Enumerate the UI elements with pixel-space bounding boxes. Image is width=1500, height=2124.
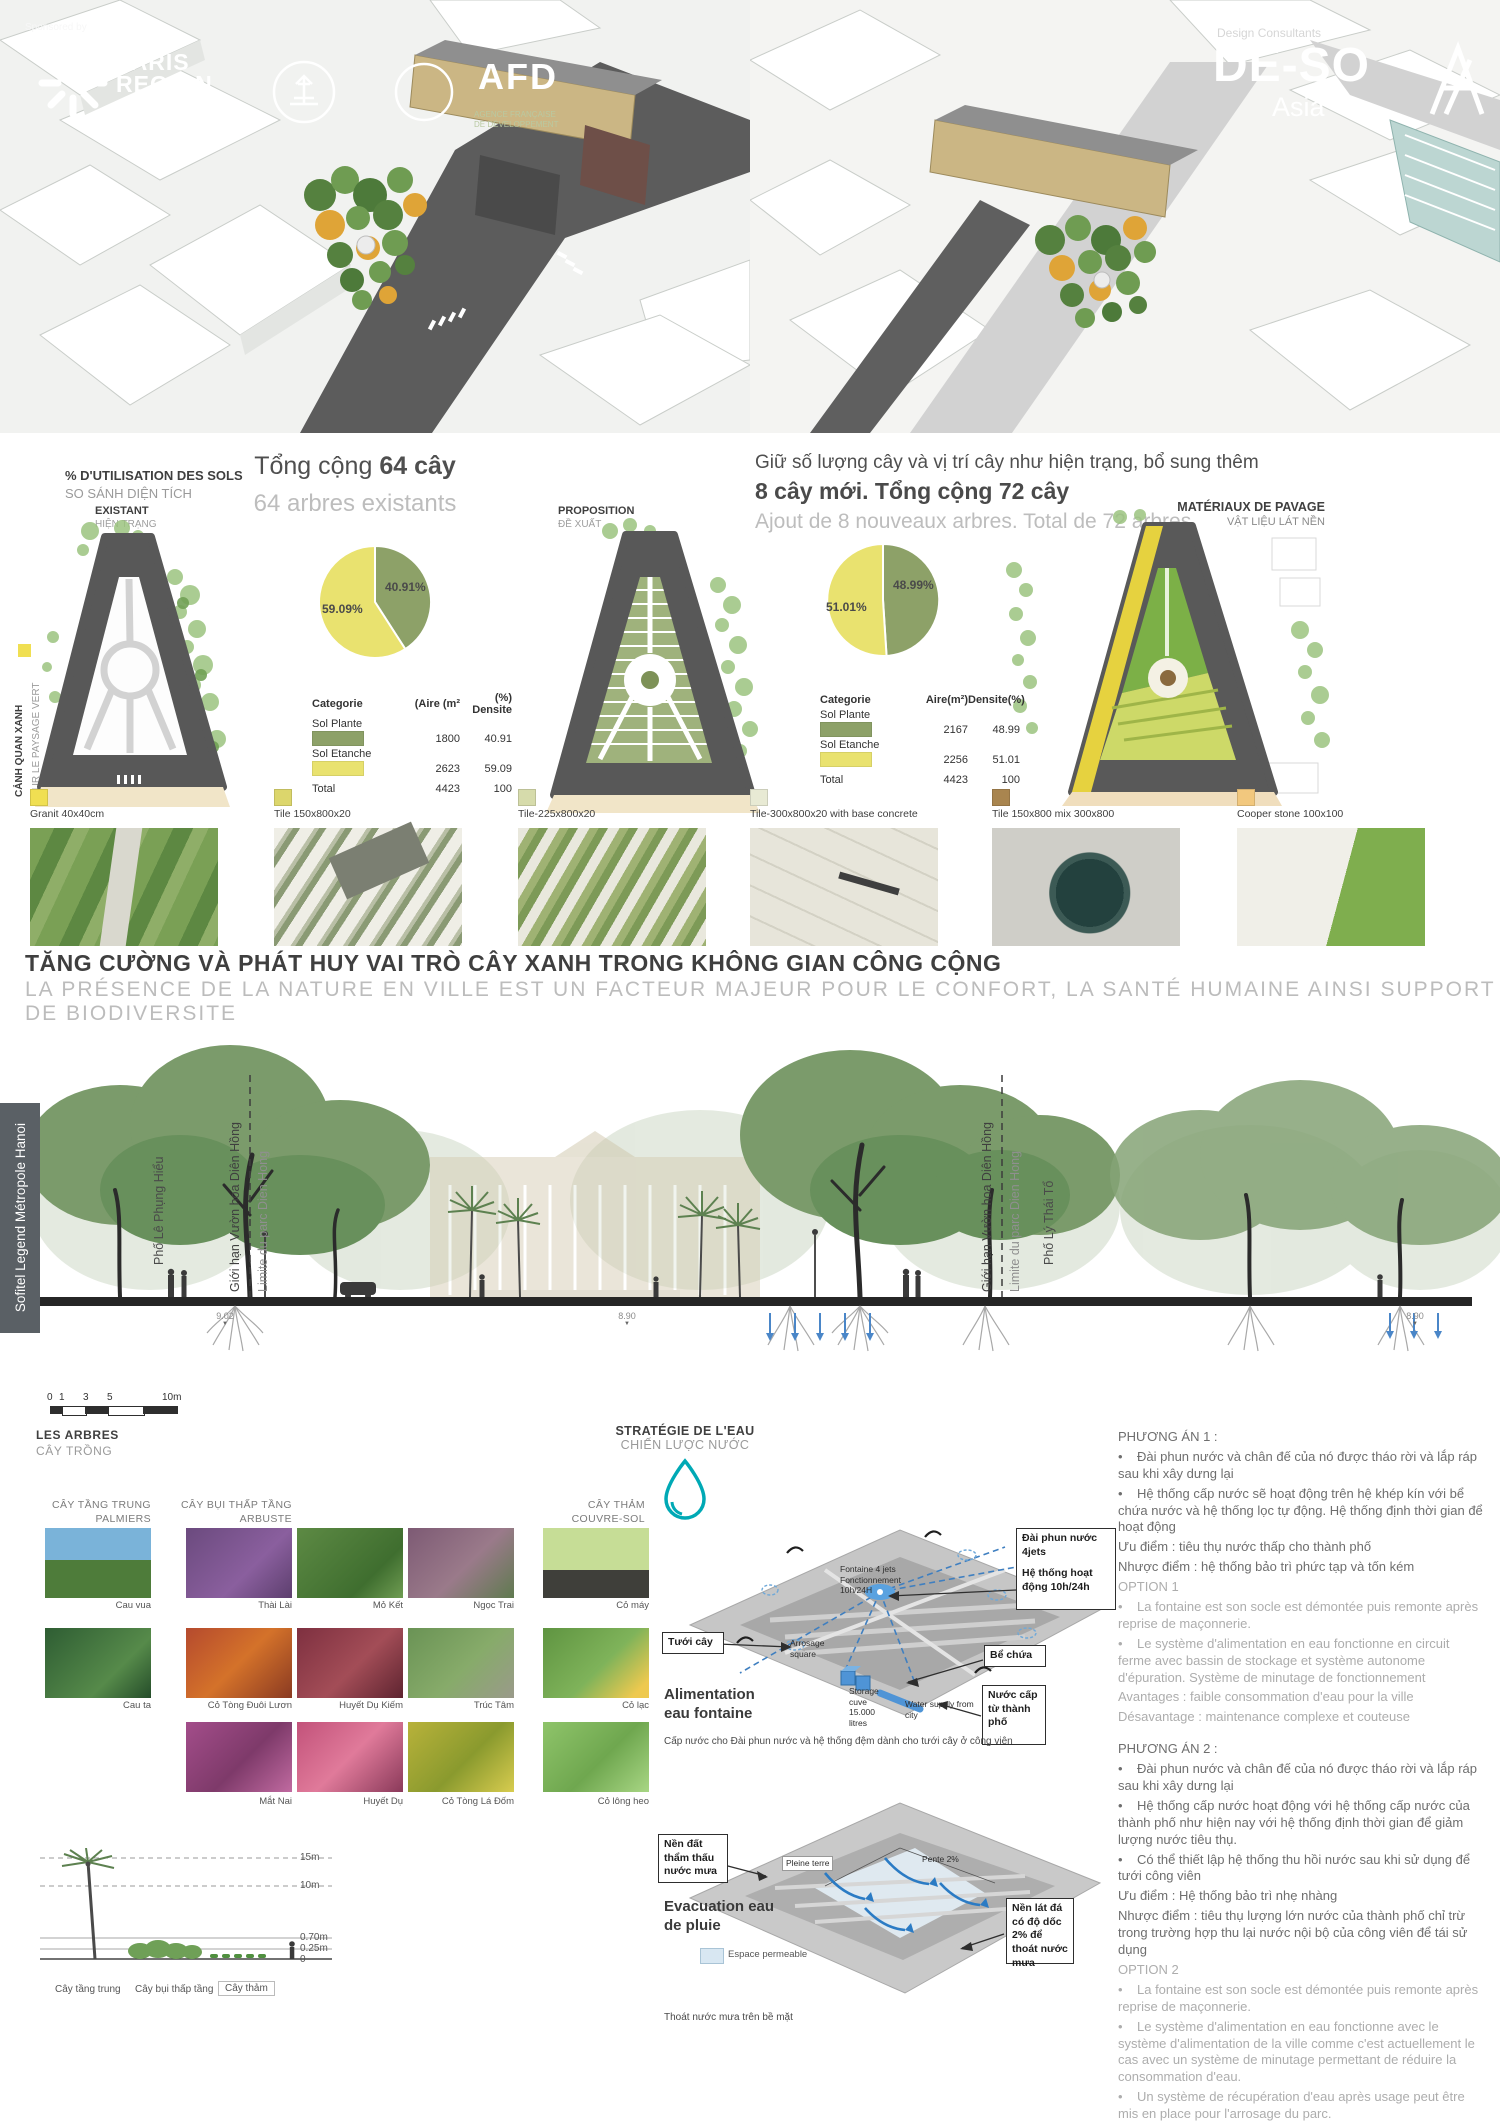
plant-photo (543, 1528, 649, 1598)
render-proposed-aerial (750, 0, 1500, 433)
land-use-heading-vi: SO SÁNH DIỆN TÍCH (65, 486, 192, 501)
height-category-2: Cây bụi thấp tầng (135, 1984, 213, 1995)
pa1-title: PHƯƠNG ÁN 1 : (1118, 1429, 1486, 1446)
group-palmiers-header: CÂY TẦNG TRUNGPALMIERS (31, 1498, 151, 1526)
material-photo-tile300 (750, 828, 938, 946)
afd-icon (392, 60, 456, 124)
material-swatch-tile150 (274, 789, 292, 806)
existing-site-plan (25, 515, 240, 815)
scale-tick: 3 (83, 1392, 89, 1403)
tree-canopy-far-right (1110, 1080, 1500, 1245)
material-swatch-tile300 (750, 789, 768, 806)
afd-tagline: AGENCE FRANÇAISE (474, 110, 558, 120)
pleine-terre-label: Pleine terre (782, 1856, 833, 1871)
height-label-070: 0.70m (300, 1932, 355, 1943)
plant-photo (408, 1628, 514, 1698)
material-label: Tile-225x800x20 (518, 808, 595, 820)
plant-photo (543, 1722, 649, 1792)
plants-title-fr: LES ARBRES (36, 1428, 119, 1442)
plant-photo (186, 1528, 292, 1598)
height-label-025: 0.25m (300, 1943, 355, 1954)
plant-caption: Cỏ lạc (543, 1700, 649, 1711)
plant-caption: Cỏ lông heo (543, 1796, 649, 1807)
presentation-board: Sponsored by PARIS REGION AFD AGENCE FRA… (0, 0, 1500, 2124)
fountain-caption: Cấp nước cho Đài phun nước và hệ thống đ… (664, 1736, 1044, 1747)
material-photo-mix (992, 828, 1180, 946)
plant-photo (186, 1628, 292, 1698)
swatch-sol-etanche (312, 761, 364, 776)
pie-existing-green-label: 40.91% (385, 580, 426, 594)
paris-region-icon (34, 44, 112, 122)
alimentation-label: Alimentationeau fontaine (664, 1686, 755, 1724)
street-label-left: Phố Lê Phụng Hiểu (152, 1085, 166, 1265)
material-label: Cooper stone 100x100 (1237, 808, 1343, 820)
elevation-marker: 8.90▼ (612, 1312, 642, 1327)
plant-photo (408, 1722, 514, 1792)
planting-height-diagram (40, 1848, 340, 1998)
table-existing: Categorie (Aire (m² (%) Densite Sol Plan… (312, 692, 512, 796)
water-drop-icon (660, 1456, 710, 1526)
plant-caption: Cỏ Tòng Đuôi Lươn (186, 1700, 292, 1711)
material-label: Tile-300x800x20 with base concrete (750, 808, 918, 820)
deso-wordmark: DE-SO (1213, 38, 1370, 93)
scale-bar-segment (62, 1406, 87, 1416)
plant-photo (186, 1722, 292, 1792)
arrosage-label: Arrosagesquare (790, 1638, 834, 1659)
page-title: TĂNG CƯỜNG VÀ PHÁT HUY VAI TRÒ CÂY XANH … (25, 950, 1001, 977)
pie-proposed-green-label: 48.99% (893, 578, 934, 592)
material-swatch-mix (992, 789, 1010, 806)
rain-caption: Thoát nước mưa trên bề mặt (664, 2012, 964, 2023)
plant-caption: Trúc Tâm (408, 1700, 514, 1711)
scale-bar-segment (143, 1406, 178, 1414)
material-label: Granit 40x40cm (30, 808, 104, 820)
scale-tick: 5 (107, 1392, 113, 1403)
architect-logo-icon (1420, 38, 1492, 122)
hotel-label: Sofitel Legend Métropole Hanoi (13, 1123, 28, 1312)
sponsored-by-label: Sponsored by (25, 22, 87, 33)
scale-tick: 0 (47, 1392, 53, 1403)
height-label-15m: 15m (300, 1852, 355, 1863)
plant-photo (297, 1628, 403, 1698)
deso-asia-label: Asia (1272, 92, 1325, 123)
plant-photo (297, 1722, 403, 1792)
material-photo-tile225 (518, 828, 706, 946)
water-supply-label: Water supply from city (905, 1699, 985, 1720)
existing-subheadline: 64 arbres existants (205, 490, 505, 518)
street-label-right: Phố Lý Thái Tổ (1042, 1085, 1056, 1265)
park-limit-label-fr-left: Limite du parc Dien Hong (256, 1042, 270, 1292)
watering-callout-box: Tưới cây (662, 1632, 724, 1654)
scale-bar-segment (108, 1406, 145, 1416)
water-strategy-title: STRATÉGIE DE L'EAU CHIẾN LƯỢC NƯỚC (585, 1424, 785, 1452)
elevation-marker: 8.90▼ (1400, 1312, 1430, 1327)
plant-photo (45, 1628, 151, 1698)
group-arbuste-header: CÂY BỤI THẤP TẦNGARBUSTE (172, 1498, 292, 1526)
plant-photo (543, 1628, 649, 1698)
pente-label: Pente 2% (922, 1854, 959, 1865)
plant-caption: Cỏ máy (543, 1600, 649, 1611)
swatch-sol-plante (820, 722, 872, 737)
existing-headline: Tổng cộng 64 cây (205, 452, 505, 481)
plant-photo (408, 1528, 514, 1598)
material-swatch-granit (30, 789, 48, 806)
material-label: Tile 150x800x20 (274, 808, 351, 820)
plant-caption: Mỏ Kết (297, 1600, 403, 1611)
material-swatch-tile225 (518, 789, 536, 806)
plant-photo (297, 1528, 403, 1598)
plant-caption: Thài Lài (186, 1600, 292, 1611)
tree-roots (207, 1306, 1424, 1351)
storage-label: Storagecuve15.000 litres (849, 1686, 895, 1729)
pie-proposed-yellow-label: 51.01% (826, 600, 867, 614)
plant-caption: Mắt Nai (186, 1796, 292, 1807)
infiltration-arrows (766, 1313, 1442, 1341)
ground-line (28, 1297, 1472, 1306)
side-label-vi: CẢNH QUAN XANH (14, 662, 25, 797)
plant-caption: Cỏ Tòng Lá Đốm (408, 1796, 514, 1807)
plant-photo (45, 1528, 151, 1598)
swatch-sol-plante (312, 731, 364, 746)
swatch-sol-etanche (820, 752, 872, 767)
material-photo-granit (30, 828, 218, 946)
height-label-10m: 10m (300, 1880, 355, 1891)
plant-caption: Huyết Dụ (297, 1796, 403, 1807)
permeable-legend-label: Espace permeable (728, 1949, 807, 1960)
plants-title-vi: CÂY TRỒNG (36, 1444, 112, 1458)
evacuation-label: Evacuation eaude pluie (664, 1898, 774, 1936)
pie-slice-sol-plante (883, 544, 939, 656)
plant-caption: Ngọc Trai (408, 1600, 514, 1611)
scale-tick: 1 (59, 1392, 65, 1403)
material-swatch-cooper (1237, 789, 1255, 806)
park-limit-label-vi-left: Giới hạn Vườn hoa Diên Hồng (228, 1042, 242, 1292)
group-couvre-sol-header: CÂY THẢMCOUVRE-SOL (525, 1498, 645, 1526)
plant-caption: Huyết Dụ Kiếm (297, 1700, 403, 1711)
height-category-3: Cây thảm (218, 1981, 275, 1996)
height-label-0: 0 (300, 1954, 355, 1965)
option2-title: OPTION 2 (1118, 1962, 1486, 1979)
option1-title: OPTION 1 (1118, 1579, 1486, 1596)
plant-caption: Cau vua (45, 1600, 151, 1611)
park-limit-label-vi-right: Giới hạn Vườn hoa Diên Hồng (980, 1042, 994, 1292)
table-proposed: Categorie Aire(m²) Densite(%) Sol Plante… (820, 692, 1020, 787)
material-label: Tile 150x800 mix 300x800 (992, 808, 1114, 820)
permeable-legend-swatch (700, 1948, 724, 1964)
material-photo-cooper (1237, 828, 1425, 946)
options-text-column: PHƯƠNG ÁN 1 : • Đài phun nước và chân đế… (1118, 1414, 1486, 2124)
fountain-callout-box: Đài phun nước 4jets Hệ thống hoạt động 1… (1016, 1528, 1116, 1610)
render-existing-aerial (0, 0, 750, 433)
tank-callout-box: Bể chứa (984, 1645, 1046, 1667)
proposed-site-plan (540, 515, 770, 825)
fountain-inline-label: Fontaine 4 jetsFonctionnement 10h/24H (840, 1564, 930, 1596)
elevation-marker: 9.02▼ (210, 1312, 240, 1327)
afd-wordmark: AFD (478, 56, 558, 98)
plant-caption: Cau ta (45, 1700, 151, 1711)
paving-materials-plan (1000, 508, 1340, 818)
pa2-title: PHƯƠNG ÁN 2 : (1118, 1741, 1486, 1758)
scale-tick: 10m (162, 1392, 181, 1403)
proposed-headline-1: Giữ số lượng cây và vị trí cây như hiện … (755, 452, 1275, 474)
hotel-bar: Sofitel Legend Métropole Hanoi (0, 1103, 40, 1333)
hanoi-emblem-icon (270, 58, 338, 126)
scale-bar-segment (85, 1406, 108, 1414)
scale-bar-segment (50, 1406, 62, 1414)
pie-existing-yellow-label: 59.09% (322, 602, 363, 616)
material-photo-tile150 (274, 828, 462, 946)
height-category-1: Cây tầng trung (55, 1984, 121, 1995)
park-limit-label-fr-right: Limite du parc Dien Hong (1008, 1042, 1022, 1292)
permeable-callout-box: Nền đất thẩm thấu nước mưa (658, 1834, 728, 1883)
paved-slope-callout-box: Nền lát đá có độ dốc 2% để thoát nước mư… (1006, 1898, 1074, 1964)
